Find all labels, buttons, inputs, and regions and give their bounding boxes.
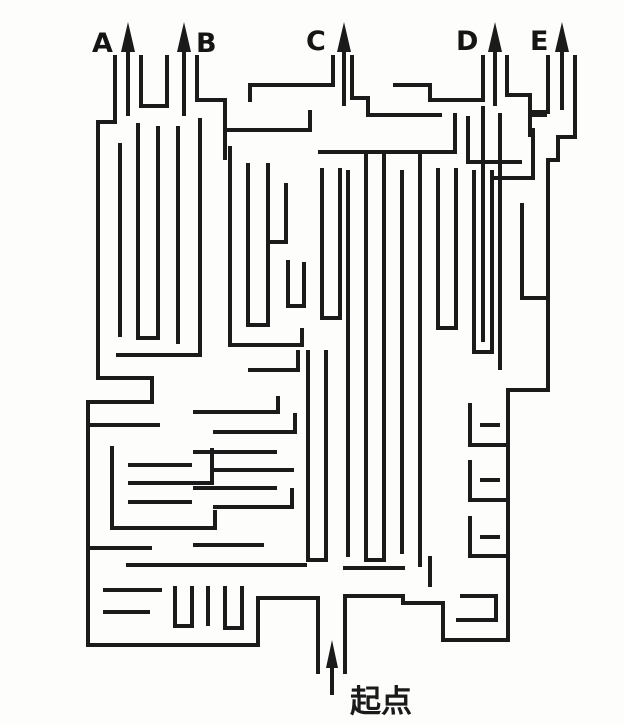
maze-wall bbox=[175, 588, 192, 626]
maze-wall bbox=[438, 170, 456, 328]
maze-wall bbox=[250, 57, 333, 100]
maze-wall bbox=[530, 57, 548, 135]
maze-wall bbox=[468, 118, 520, 162]
exit-arrow-b bbox=[177, 22, 191, 116]
maze-wall bbox=[288, 262, 304, 306]
maze-wall bbox=[345, 57, 575, 672]
maze-wall bbox=[88, 57, 318, 672]
exit-arrow-e bbox=[555, 22, 569, 110]
exit-label-c: C bbox=[306, 26, 326, 57]
maze-wall bbox=[507, 57, 545, 115]
maze-wall bbox=[322, 170, 340, 318]
exit-arrow-c bbox=[337, 22, 351, 106]
maze-wall bbox=[458, 596, 496, 620]
exit-label-b: B bbox=[196, 28, 217, 59]
maze-wall bbox=[270, 185, 286, 242]
maze-wall bbox=[228, 112, 310, 130]
maze-walls bbox=[88, 57, 575, 672]
maze-puzzle: A B C D E 起点 bbox=[0, 0, 624, 725]
maze-wall bbox=[215, 415, 295, 432]
maze-wall bbox=[366, 152, 384, 560]
maze-wall bbox=[141, 57, 167, 106]
exit-label-a: A bbox=[92, 28, 113, 59]
maze-canvas: A B C D E 起点 bbox=[0, 0, 624, 725]
start-arrow bbox=[326, 640, 338, 695]
exit-label-d: D bbox=[456, 26, 478, 57]
maze-wall bbox=[138, 125, 158, 338]
maze-wall bbox=[225, 588, 242, 628]
maze-wall bbox=[308, 352, 326, 560]
maze-wall bbox=[195, 398, 278, 412]
maze-wall bbox=[320, 115, 455, 152]
maze-wall bbox=[395, 57, 483, 100]
exit-label-e: E bbox=[530, 26, 548, 57]
exit-arrow-d bbox=[488, 22, 502, 106]
maze-wall bbox=[250, 352, 298, 370]
maze-wall bbox=[215, 490, 292, 507]
maze-wall bbox=[522, 205, 544, 298]
start-point-label: 起点 bbox=[350, 684, 412, 720]
maze-wall bbox=[248, 165, 268, 325]
exit-arrow-a bbox=[121, 22, 135, 116]
